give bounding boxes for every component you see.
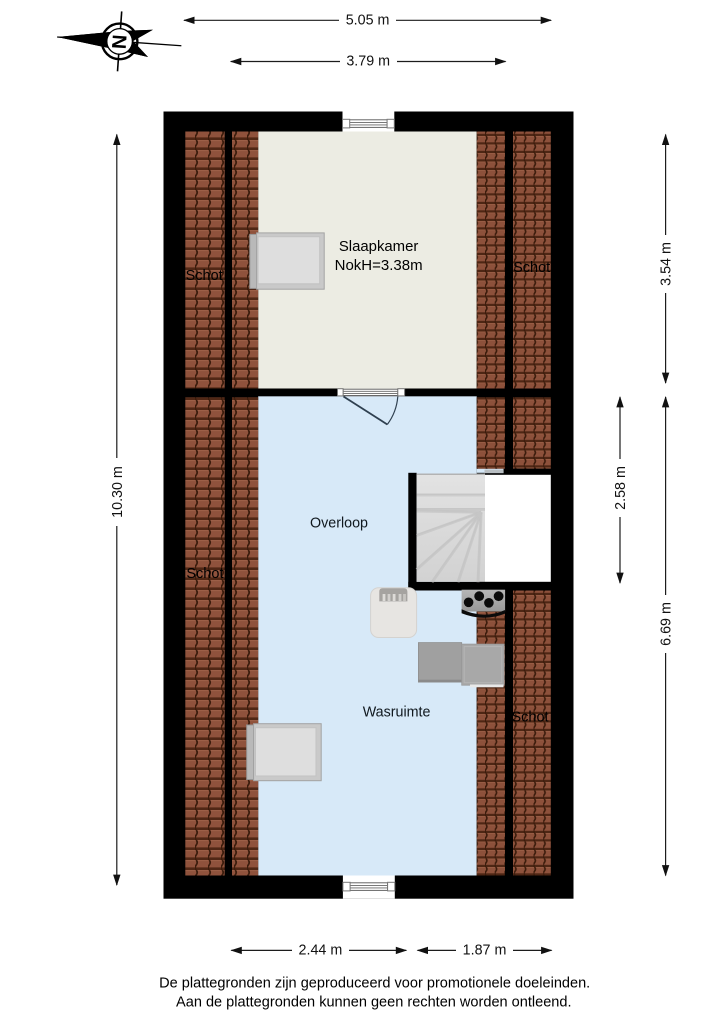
svg-text:3.54 m: 3.54 m: [659, 242, 675, 286]
svg-text:NokH=3.38m: NokH=3.38m: [335, 257, 423, 274]
svg-text:Overloop: Overloop: [310, 515, 368, 531]
svg-text:10.30 m: 10.30 m: [110, 466, 126, 518]
svg-text:Schot: Schot: [186, 566, 223, 582]
svg-text:Schot: Schot: [512, 710, 549, 726]
svg-text:6.69 m: 6.69 m: [659, 602, 675, 646]
svg-text:Aan de plattegronden kunnen ge: Aan de plattegronden kunnen geen rechten…: [176, 995, 572, 1011]
svg-text:3.79 m: 3.79 m: [346, 54, 390, 70]
svg-text:N: N: [109, 34, 132, 50]
svg-text:2.58 m: 2.58 m: [613, 466, 629, 510]
svg-text:2.44 m: 2.44 m: [299, 943, 343, 959]
svg-text:De plattegronden zijn geproduc: De plattegronden zijn geproduceerd voor …: [159, 976, 590, 992]
svg-text:Schot: Schot: [186, 268, 223, 284]
svg-text:Slaapkamer: Slaapkamer: [339, 239, 418, 255]
svg-text:Wasruimte: Wasruimte: [363, 705, 431, 721]
svg-text:5.05 m: 5.05 m: [346, 12, 390, 28]
svg-text:1.87 m: 1.87 m: [463, 943, 507, 959]
svg-text:Schot: Schot: [513, 260, 550, 276]
